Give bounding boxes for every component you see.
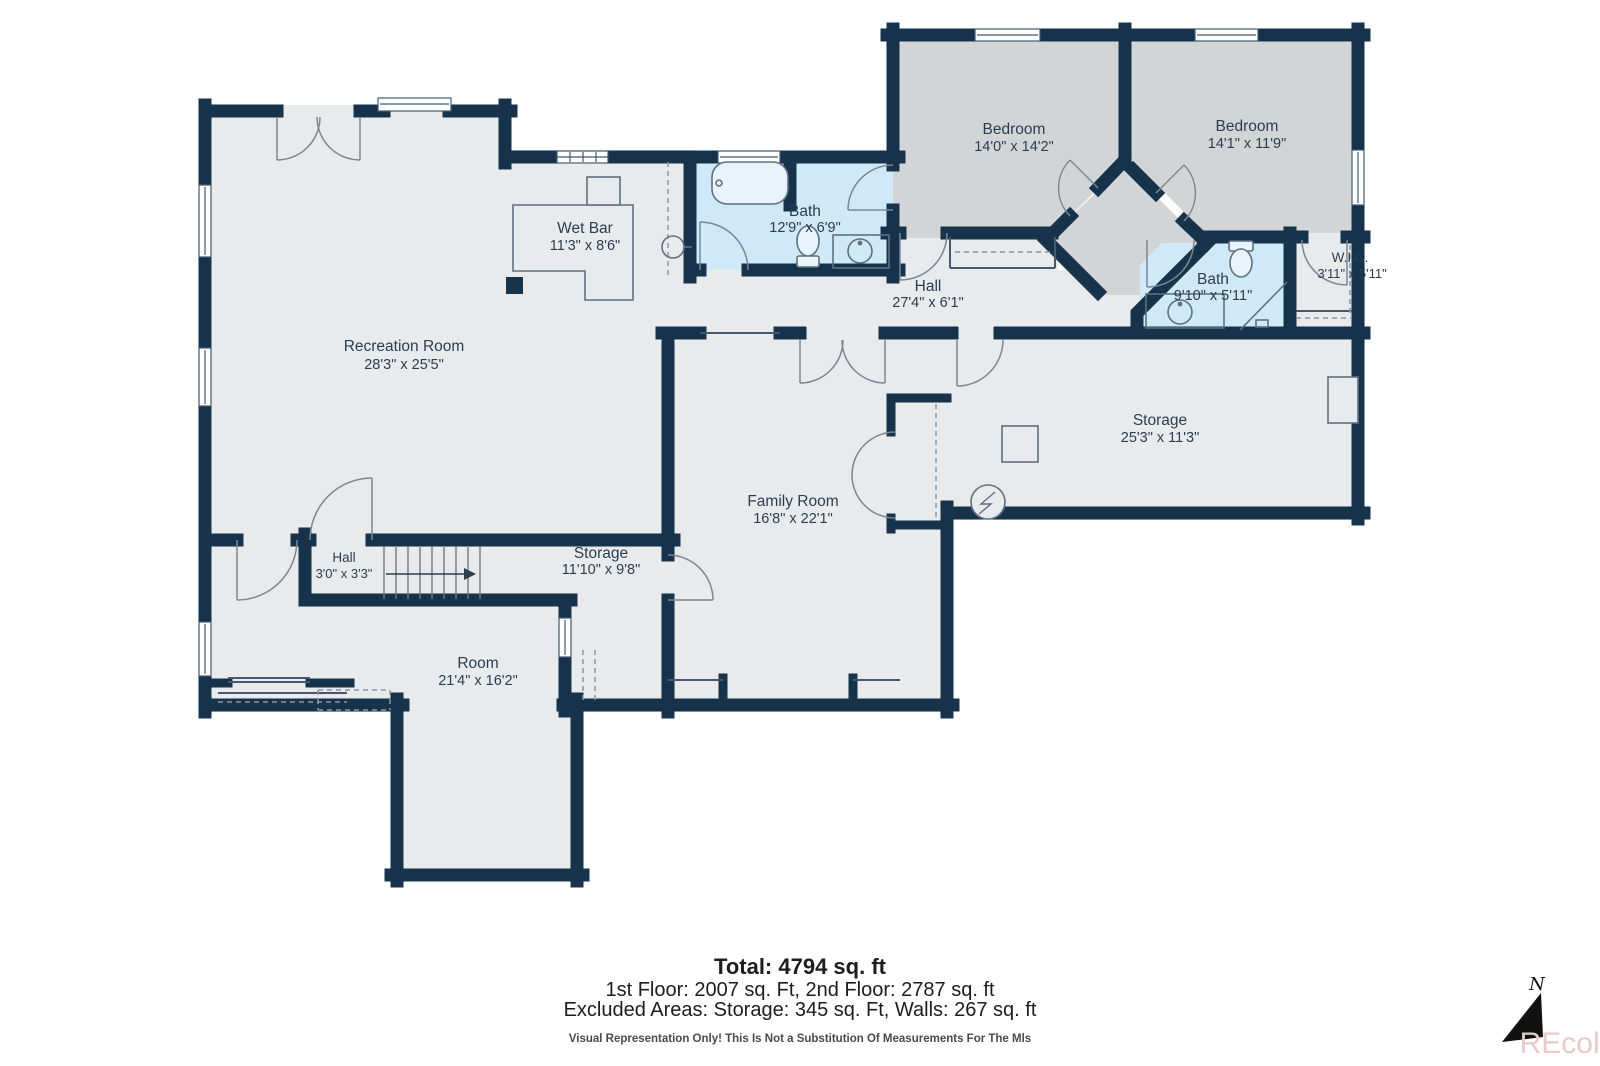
- room-dims: 12'9" x 6'9": [769, 220, 840, 236]
- room-label: Family Room: [747, 493, 838, 510]
- floor-family-closet: [891, 398, 947, 525]
- column-icon: [506, 277, 523, 294]
- room-label: Bath: [1197, 271, 1229, 288]
- room-dims: 11'3" x 8'6": [550, 238, 620, 254]
- room-dims: 9'10" x 5'11": [1174, 288, 1252, 304]
- room-dims: 28'3" x 25'5": [364, 357, 444, 373]
- room-dims: 21'4" x 16'2": [438, 673, 518, 689]
- room-label: Bath: [789, 203, 821, 220]
- summary-disclaimer: Visual Representation Only! This Is Not …: [569, 1033, 1031, 1045]
- toilet-tank-icon: [797, 256, 819, 267]
- summary-excluded: Excluded Areas: Storage: 345 sq. Ft, Wal…: [564, 999, 1037, 1021]
- room-dims: 3'11" x 5'11": [1317, 266, 1387, 281]
- room-dims: 11'10" x 9'8": [562, 562, 640, 578]
- north-label: N: [1528, 974, 1546, 995]
- floor-plan-page: Recreation Room 28'3" x 25'5" Wet Bar 11…: [0, 0, 1600, 1066]
- room-label: Room: [457, 655, 498, 672]
- room-label: W.I.C.: [1332, 250, 1369, 265]
- floor-room-extension: [397, 705, 577, 881]
- water-heater-icon: [971, 485, 1005, 519]
- floor-plan: Recreation Room 28'3" x 25'5" Wet Bar 11…: [0, 0, 1600, 1066]
- room-dims: 16'8" x 22'1": [753, 511, 833, 527]
- room-dims: 25'3" x 11'3": [1121, 430, 1199, 446]
- room-label: Wet Bar: [557, 220, 613, 237]
- summary-floors: 1st Floor: 2007 sq. Ft, 2nd Floor: 2787 …: [605, 979, 995, 1001]
- area-summary: Total: 4794 sq. ft 1st Floor: 2007 sq. F…: [564, 954, 1037, 1045]
- watermark: REcolorado: [1520, 1027, 1600, 1060]
- room-dims: 27'4" x 6'1": [892, 295, 963, 311]
- room-label: Storage: [1133, 412, 1187, 429]
- wet-bar-cabinet: [587, 177, 620, 205]
- summary-total: Total: 4794 sq. ft: [714, 954, 887, 979]
- room-label: Hall: [332, 550, 355, 565]
- room-label: Bedroom: [1216, 118, 1279, 135]
- room-dims: 14'1" x 11'9": [1208, 136, 1286, 152]
- floor-closet-strip: [893, 233, 1058, 277]
- bathtub-icon: [712, 162, 788, 204]
- room-dims: 14'0" x 14'2": [974, 139, 1054, 155]
- room-label: Bedroom: [983, 121, 1046, 138]
- room-dims: 3'0" x 3'3": [316, 566, 373, 581]
- sink-faucet-icon: [858, 241, 861, 244]
- room-label: Hall: [915, 278, 942, 295]
- utility-box-icon: [1328, 377, 1358, 423]
- toilet-icon: [1230, 249, 1252, 277]
- furnace-icon: [1002, 426, 1038, 462]
- room-label: Recreation Room: [344, 338, 465, 355]
- room-label: Storage: [574, 545, 628, 562]
